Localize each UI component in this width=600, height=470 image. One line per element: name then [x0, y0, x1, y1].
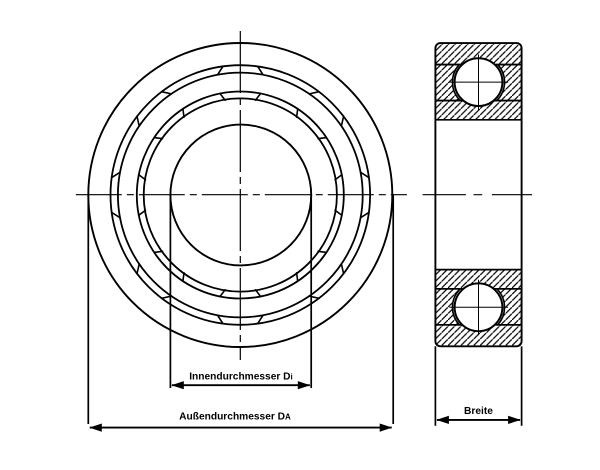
svg-text:Außendurchmesser DA: Außendurchmesser DA [179, 412, 291, 423]
svg-text:Breite: Breite [464, 406, 493, 417]
svg-text:Innendurchmesser Di: Innendurchmesser Di [189, 372, 293, 383]
